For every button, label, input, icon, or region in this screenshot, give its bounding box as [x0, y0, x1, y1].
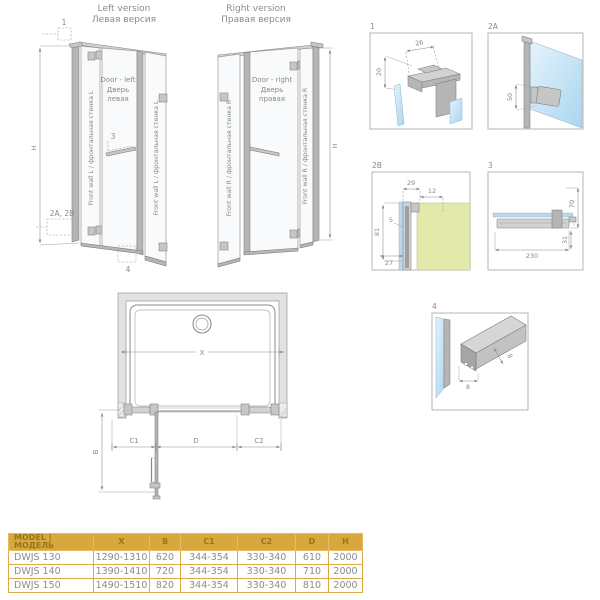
dimension-table-wrap: MODEL | МОДЕЛЬ X B C1 C2 D H DWJS 130 12… [8, 533, 363, 593]
detail-label-2a: 2A [488, 22, 499, 31]
plan-view: X B C1 D [92, 293, 287, 499]
dim-8-width: 8 [466, 383, 470, 391]
dim-70: 70 [568, 200, 576, 208]
dim-27: 27 [385, 259, 393, 267]
cell-d: 610 [296, 551, 329, 565]
door-label-en: Door - left [100, 76, 135, 84]
cell-c1: 344-354 [181, 551, 238, 565]
dim-c1: C1 [129, 437, 138, 445]
detail-marker-4: 4 [126, 265, 131, 274]
dim-x: X [200, 349, 205, 357]
cell-b: 620 [150, 551, 181, 565]
dim-26: 26 [415, 38, 424, 47]
technical-drawing: Left version Левая версия Right version … [0, 0, 600, 600]
left-version-diagram: H 1 Front wall L / фронтальная стенка L … [30, 18, 167, 274]
detail-view-2b: 2B 29 12 5 81 27 [372, 161, 470, 270]
detail-view-2a: 2A 50 [488, 22, 583, 129]
dim-12: 12 [428, 187, 436, 195]
cell-c1: 344-354 [181, 579, 238, 593]
wall-profile [524, 39, 530, 128]
cell-model: DWJS 140 [9, 565, 94, 579]
door-label-ru2: левая [107, 95, 128, 103]
cell-d: 810 [296, 579, 329, 593]
table-row: DWJS 130 1290-1310 620 344-354 330-340 6… [9, 551, 363, 565]
dim-20: 20 [375, 68, 383, 76]
cell-c2: 330-340 [238, 579, 296, 593]
table-header-row: MODEL | МОДЕЛЬ X B C1 C2 D H [9, 534, 363, 551]
front-wall-label: Front wall L / фронтальная стенка L [153, 100, 160, 215]
dim-b: B [92, 449, 100, 454]
left-version-title-en: Left version [98, 4, 151, 14]
table-row: DWJS 140 1390-1410 720 344-354 330-340 7… [9, 565, 363, 579]
detail-label-4: 4 [432, 302, 437, 311]
wall-section [417, 203, 470, 270]
dim-29: 29 [407, 179, 415, 187]
rail-bracket [552, 210, 562, 228]
col-header-c1: C1 [181, 534, 238, 551]
dimension-table: MODEL | МОДЕЛЬ X B C1 C2 D H DWJS 130 12… [8, 533, 363, 593]
dim-c2: C2 [254, 437, 263, 445]
detail-marker-1: 1 [62, 18, 67, 27]
detail-marker-2a2b: 2A, 2B [50, 209, 75, 218]
hinge-block [536, 86, 561, 106]
cell-c1: 344-354 [181, 565, 238, 579]
detail-label-2b: 2B [372, 161, 382, 170]
col-header-d: D [296, 534, 329, 551]
dim-230: 230 [526, 252, 538, 260]
cell-model: DWJS 150 [9, 579, 94, 593]
col-header-x: X [94, 534, 150, 551]
cell-d: 710 [296, 565, 329, 579]
dim-31: 31 [561, 236, 569, 244]
dim-h-right: H [331, 143, 339, 148]
cell-x: 1290-1310 [94, 551, 150, 565]
detail-view-4: 4 8 8 [432, 302, 528, 410]
dim-5: 5 [389, 216, 393, 224]
spec-sheet: Left version Левая версия Right version … [0, 0, 600, 600]
col-header-c2: C2 [238, 534, 296, 551]
front-wall-label: Front wall L / фронтальная стенка L [88, 90, 95, 205]
detail-label-3: 3 [488, 161, 493, 170]
dim-81: 81 [373, 228, 381, 236]
right-version-diagram: Front wall R / фронтальная стенка R Door… [218, 42, 339, 267]
cell-b: 820 [150, 579, 181, 593]
detail-view-3: 3 230 31 70 [488, 161, 583, 270]
col-header-h: H [329, 534, 363, 551]
cell-x: 1390-1410 [94, 565, 150, 579]
door-stile [137, 51, 143, 255]
cell-b: 720 [150, 565, 181, 579]
glass-edge [399, 202, 403, 270]
cell-x: 1490-1510 [94, 579, 150, 593]
dim-d: D [193, 437, 198, 445]
left-version-title-ru: Левая версия [92, 15, 156, 25]
wall-profile [313, 46, 319, 242]
door-label-ru1: Дверь [261, 86, 283, 94]
glass-panel [436, 317, 444, 398]
cell-h: 2000 [329, 551, 363, 565]
door-label-en: Door - right [252, 76, 293, 84]
door-label-ru1: Дверь [107, 86, 129, 94]
front-wall-label: Front wall R / фронтальная стенка R [226, 99, 233, 216]
detail-label-1: 1 [370, 22, 375, 31]
door-stile [244, 52, 250, 254]
dim-50: 50 [506, 93, 514, 101]
col-header-model: MODEL | МОДЕЛЬ [9, 534, 94, 551]
right-version-title-en: Right version [226, 4, 286, 14]
detail-view-1: 1 26 20 [370, 22, 472, 129]
cell-c2: 330-340 [238, 551, 296, 565]
front-wall-label: Front wall R / фронтальная стенка R [302, 87, 309, 204]
cell-c2: 330-340 [238, 565, 296, 579]
dim-h-left: H [30, 145, 38, 150]
col-header-b: B [150, 534, 181, 551]
right-version-title-ru: Правая версия [221, 15, 291, 25]
cell-model: DWJS 130 [9, 551, 94, 565]
detail-marker-3: 3 [111, 132, 116, 141]
cell-h: 2000 [329, 579, 363, 593]
cell-h: 2000 [329, 565, 363, 579]
table-row: DWJS 150 1490-1510 820 344-354 330-340 8… [9, 579, 363, 593]
door-label-ru2: правая [259, 95, 285, 103]
